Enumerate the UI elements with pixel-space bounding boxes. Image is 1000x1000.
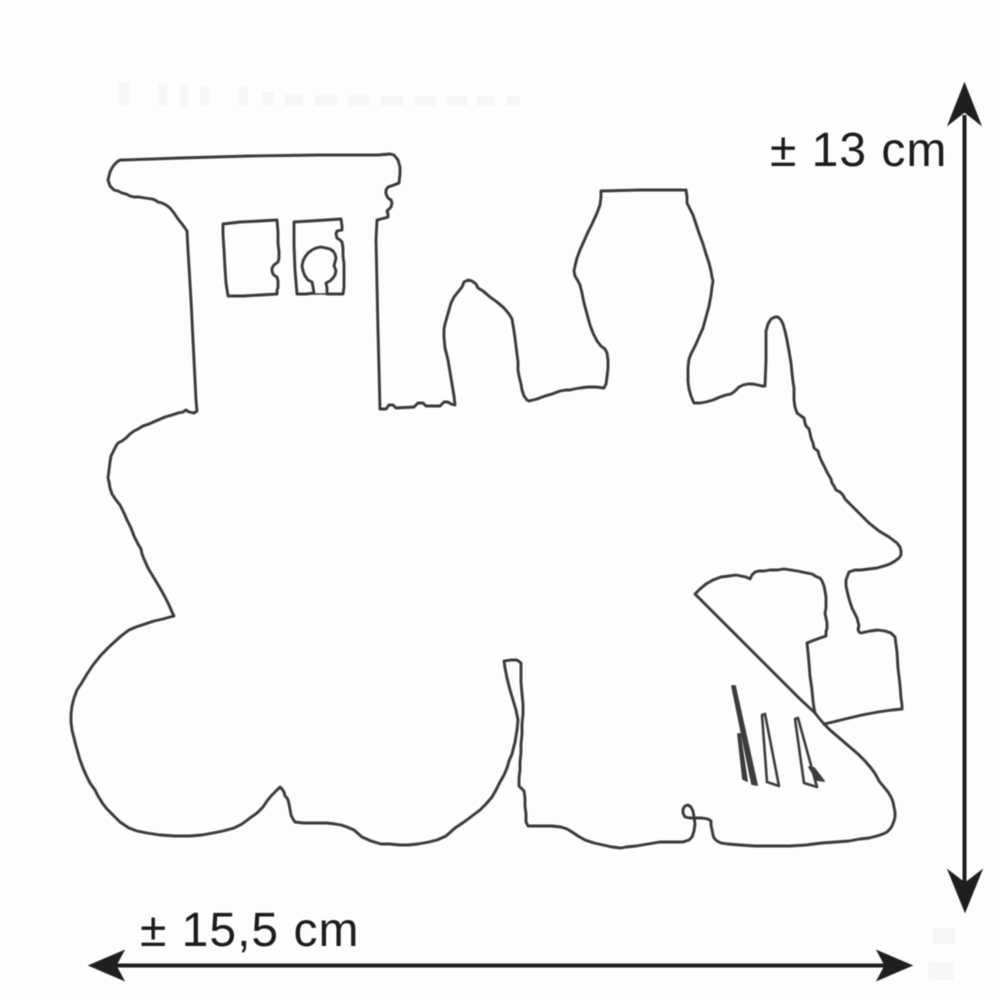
svg-text:± 15,5 cm: ± 15,5 cm [140, 904, 359, 957]
svg-text:± 13 cm: ± 13 cm [770, 124, 947, 177]
